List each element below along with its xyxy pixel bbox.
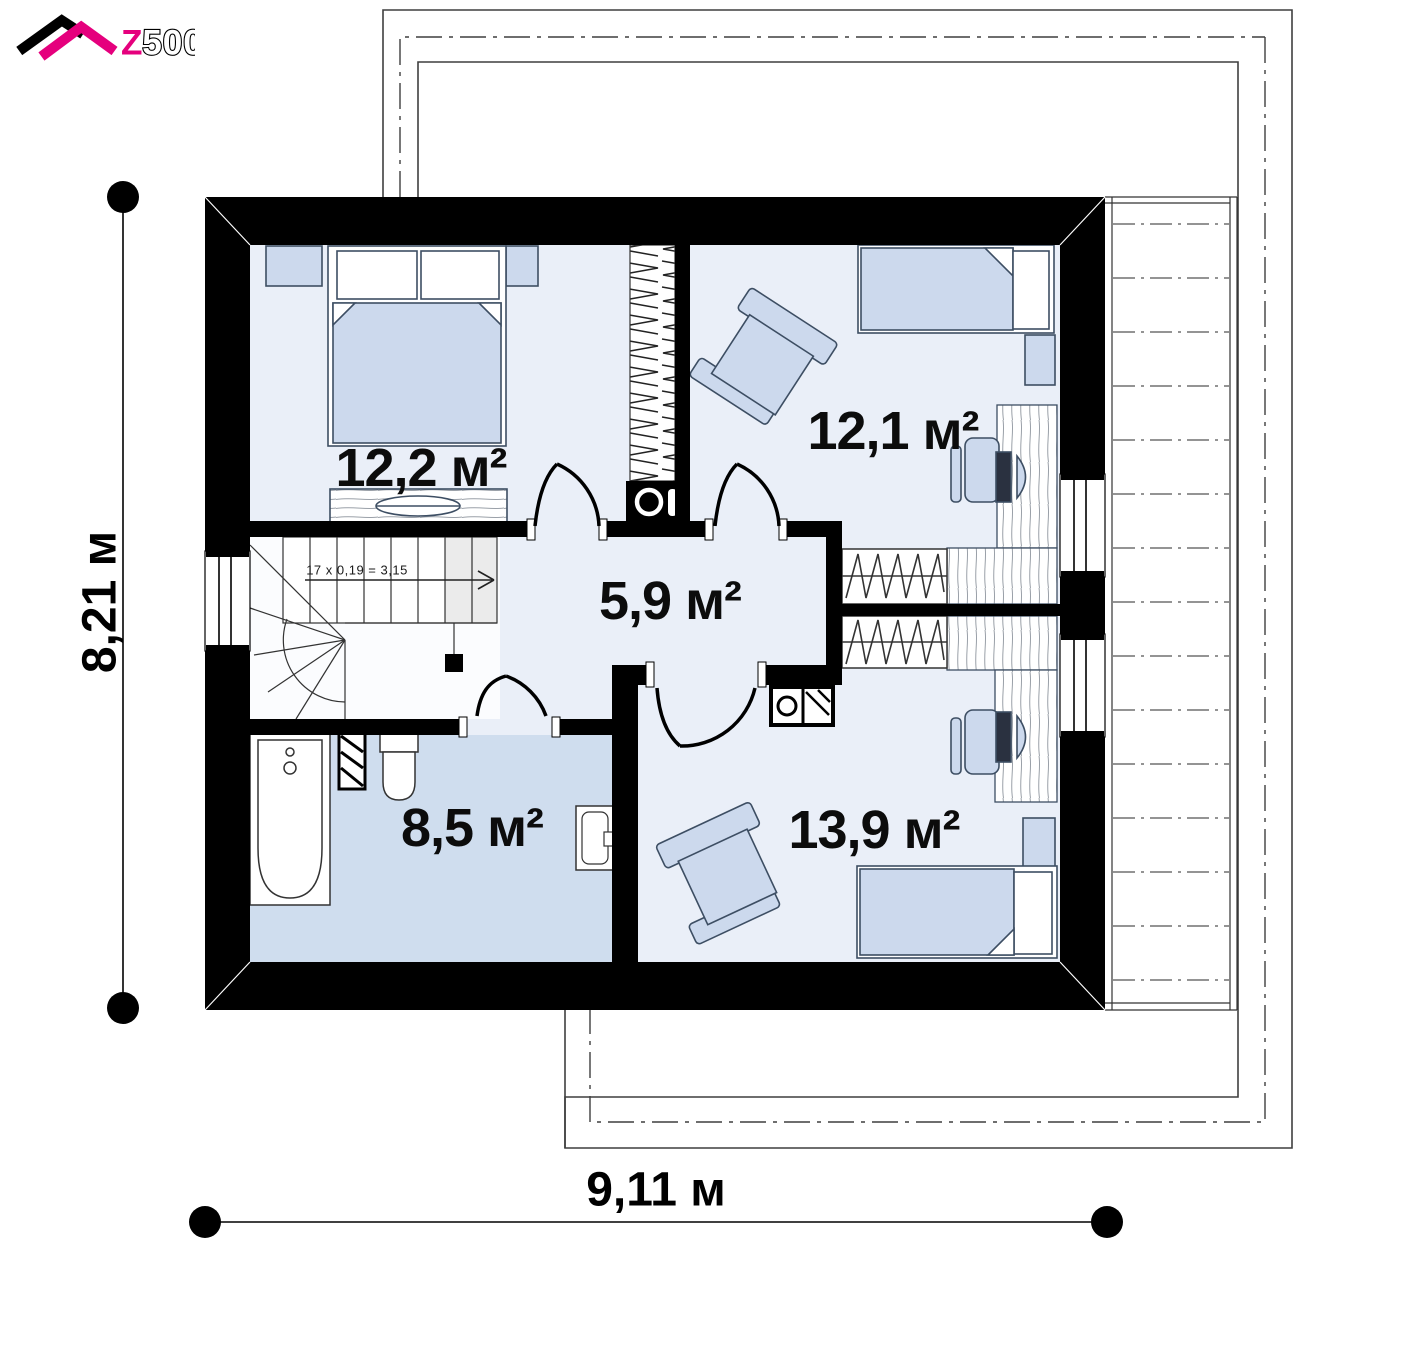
nightstand-icon <box>506 246 538 286</box>
floor-plan-page: Z 500 12,2 м² 12,1 м² 5,9 м² 8,5 м² 13,9… <box>0 0 1403 1346</box>
window-right-upper <box>1060 474 1105 577</box>
wardrobe-icon <box>842 549 947 604</box>
towel-rack-icon <box>339 733 365 789</box>
dimension-height: 8,21 м <box>73 531 128 673</box>
floor-plan-svg <box>0 0 1403 1346</box>
nightstand-icon <box>1025 335 1055 385</box>
wall-bedrooms-partition <box>838 604 1060 616</box>
dimension-width: 9,11 м <box>586 1163 726 1218</box>
logo-500: 500 <box>142 24 195 63</box>
nightstand-icon <box>266 246 322 286</box>
balcony <box>1105 197 1237 1010</box>
shelf-icon <box>1023 818 1055 868</box>
wardrobe-icon <box>842 616 947 668</box>
window-right-lower <box>1060 634 1105 737</box>
double-bed-icon <box>328 246 506 446</box>
stove-icon <box>771 687 833 725</box>
wall-bathroom-top <box>250 719 467 735</box>
balcony-deck-hatch <box>1113 224 1229 980</box>
room-label-bedroom2: 12,1 м² <box>807 400 978 462</box>
stairs-newel-post <box>445 654 463 672</box>
wall-hall-right <box>826 521 842 685</box>
washbasin-icon <box>576 806 614 870</box>
wall-bathroom-top <box>552 719 612 735</box>
z500-logo: Z 500 <box>10 8 195 68</box>
single-bed-icon <box>857 866 1057 958</box>
wall-exterior-right <box>1060 197 1105 1010</box>
wall-chimney-side <box>675 245 690 523</box>
room-label-hall: 5,9 м² <box>599 570 741 632</box>
single-bed-icon <box>858 245 1054 333</box>
wall-exterior-bottom <box>205 962 1105 1010</box>
window-left <box>205 551 250 651</box>
wall-interior <box>250 521 533 537</box>
toilet-icon <box>380 732 418 800</box>
room-label-bedroom3: 13,9 м² <box>788 799 959 861</box>
stairs-annotation: 17 x 0,19 = 3,15 <box>306 563 408 578</box>
room-label-bathroom: 8,5 м² <box>401 797 543 859</box>
wall-interior <box>601 521 713 537</box>
wall-bathroom-right <box>612 685 638 962</box>
wall-hall-bottom <box>760 665 838 685</box>
logo-z: Z <box>121 24 142 63</box>
room-label-bedroom1: 12,2 м² <box>335 437 506 499</box>
bathtub-icon <box>250 732 330 905</box>
wall-exterior-top <box>205 197 1105 245</box>
desk-chair-icon <box>951 710 999 774</box>
